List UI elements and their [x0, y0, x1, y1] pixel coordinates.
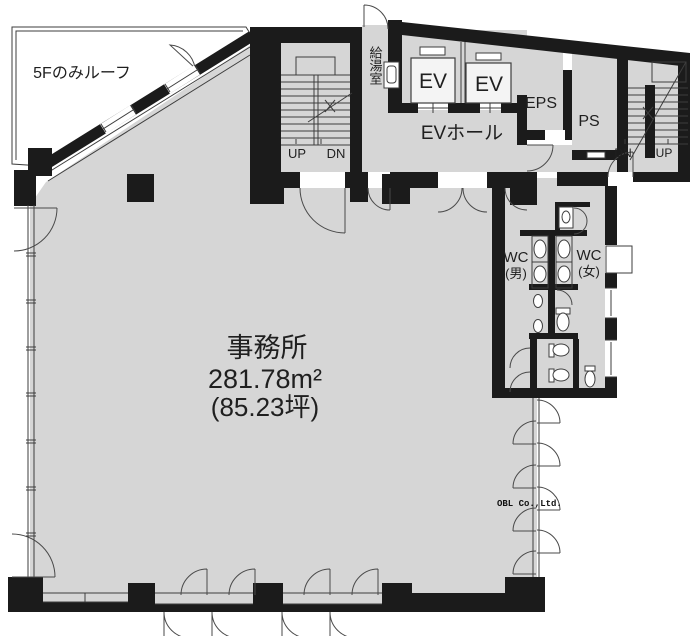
elevator-counterweight-1: [420, 47, 445, 55]
wall-wc-left: [492, 172, 505, 398]
wc-partition-2: [520, 230, 587, 236]
toilet-8-bowl: [585, 371, 595, 387]
office-area-m2: 281.78m²: [208, 364, 322, 394]
ps-vent: [587, 152, 605, 158]
wall-stairR-bottom-b: [633, 172, 690, 182]
column-2: [250, 172, 284, 204]
wall-eps-bottom-a: [517, 130, 545, 140]
toilet-7-bowl: [553, 369, 569, 381]
wall-wc-right-a: [605, 186, 617, 245]
roof-label: 5Fのみルーフ: [33, 65, 131, 82]
wall-ev-doors-c: [501, 103, 527, 113]
corner-zigzag-b: [14, 170, 36, 206]
wc-basin-wall-a: [555, 202, 590, 207]
wall-ev-doors-b: [448, 103, 480, 113]
toilet-6-bowl: [553, 344, 569, 356]
wc-exterior-door-panel: [606, 246, 632, 273]
stairR-center-wall: [645, 85, 655, 158]
stairL-dn-label: DN: [327, 146, 346, 161]
stairL-up-label: UP: [288, 146, 306, 161]
toilet-3: [558, 240, 570, 258]
toilet-8-tank: [585, 366, 595, 371]
wall-kitchen-bottom: [350, 172, 368, 202]
stairR-dn-label: DN: [614, 146, 631, 160]
wall-wc-bottom: [492, 388, 617, 398]
elevator-2-label: EV: [475, 73, 503, 96]
wall-eps-bottom-b: [565, 130, 572, 140]
wc-men-label: WC: [504, 249, 529, 266]
pilaster-a: [128, 583, 155, 612]
stairR-up-label: UP: [656, 146, 673, 160]
elevator-1-label: EV: [419, 70, 447, 93]
urinal-2: [534, 320, 543, 333]
wc-women-sub: (女): [578, 264, 600, 279]
toilet-2: [534, 266, 546, 282]
column-1: [127, 174, 154, 202]
elevator-counterweight-2: [476, 53, 501, 60]
wc-partition-1: [548, 230, 555, 290]
floorplan-canvas: 5Fのみルーフ UP DN 給湯室 EV EV EVホール EPS PS DN …: [0, 0, 690, 636]
urinal-1: [534, 295, 543, 308]
wall-bottom-band-1: [155, 604, 253, 612]
wall-stairL-right: [350, 27, 362, 172]
eps-label: EPS: [525, 95, 557, 112]
wall-wc-top: [557, 172, 608, 186]
wall-wc-right-b: [605, 273, 617, 288]
kitchen-sink-bowl: [387, 66, 396, 83]
wc-women-label: WC: [577, 247, 602, 264]
wall-stairL-bottom-b: [345, 172, 350, 188]
office-area-tsubo: (85.23坪): [211, 392, 319, 422]
wc-partition-7: [573, 339, 579, 394]
kitchenette-label: 給湯室: [368, 46, 383, 85]
office-name: 事務所: [227, 333, 308, 363]
eps-floor: [527, 40, 563, 130]
ps-label: PS: [578, 113, 599, 130]
wall-bottom-band-2: [283, 604, 382, 612]
column-3: [382, 174, 410, 204]
wc-partition-5: [529, 333, 578, 339]
wall-bottom-band-0: [43, 602, 128, 612]
wall-stairL-left: [250, 27, 281, 188]
wc-partition-4: [548, 290, 555, 338]
toilet-1: [534, 240, 546, 258]
toilet-5-bowl: [557, 313, 569, 331]
pilaster-se-corner: [505, 577, 545, 612]
wall-bottom-solid: [412, 593, 505, 612]
wc-partition-3: [529, 284, 578, 290]
wall-ev-doors-a: [402, 103, 418, 113]
wall-eps-ps-divider: [563, 70, 572, 130]
wall-wc-right-c: [605, 318, 617, 340]
ps-floor: [572, 46, 617, 150]
pilaster-sw-corner: [8, 577, 43, 612]
floorplan-svg: 5Fのみルーフ UP DN 給湯室 EV EV EVホール EPS PS DN …: [0, 0, 690, 636]
wc-partition-6: [530, 339, 537, 398]
ev-hall-label: EVホール: [421, 123, 503, 144]
toilet-4: [558, 266, 570, 282]
pilaster-c: [382, 583, 412, 612]
wc-basin-bowl: [562, 211, 570, 223]
column-wc-corner: [510, 172, 537, 205]
wc-men-sub: (男): [505, 266, 527, 281]
pilaster-b: [253, 583, 283, 612]
watermark: OBL Co.,Ltd.: [497, 499, 562, 509]
